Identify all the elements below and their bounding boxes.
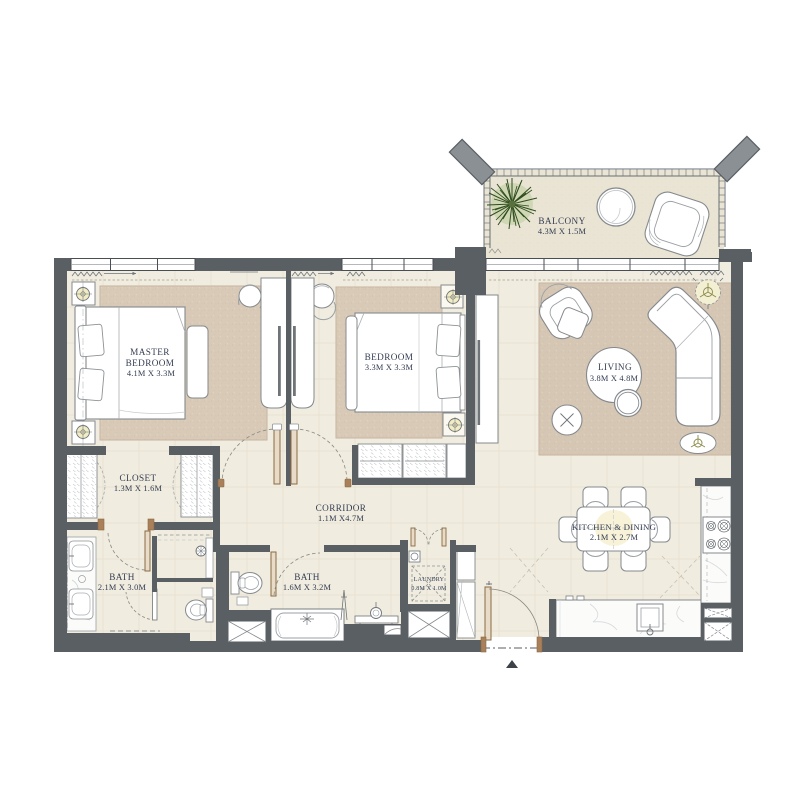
svg-text:BALCONY: BALCONY xyxy=(538,216,585,226)
svg-text:1.6M X 3.2M: 1.6M X 3.2M xyxy=(283,583,332,592)
svg-text:BEDROOM: BEDROOM xyxy=(365,352,414,362)
svg-text:0.8M X 1.0M: 0.8M X 1.0M xyxy=(411,586,447,592)
svg-text:1.1M X4.7M: 1.1M X4.7M xyxy=(318,514,364,523)
svg-text:4.3M X 1.5M: 4.3M X 1.5M xyxy=(538,227,587,236)
svg-text:LIVING: LIVING xyxy=(598,362,632,372)
svg-text:KITCHEN & DINING: KITCHEN & DINING xyxy=(572,522,657,532)
svg-text:1.3M X 1.6M: 1.3M X 1.6M xyxy=(114,484,163,493)
svg-text:CORRIDOR: CORRIDOR xyxy=(316,503,367,513)
svg-text:4.1M X 3.3M: 4.1M X 3.3M xyxy=(127,369,176,378)
svg-text:3.3M X 3.3M: 3.3M X 3.3M xyxy=(365,363,414,372)
svg-text:3.8M X 4.8M: 3.8M X 4.8M xyxy=(590,374,639,383)
svg-text:MASTER: MASTER xyxy=(130,347,170,357)
svg-text:BATH: BATH xyxy=(109,572,135,582)
svg-text:BEDROOM: BEDROOM xyxy=(126,358,175,368)
svg-text:2.1M X 2.7M: 2.1M X 2.7M xyxy=(590,533,639,542)
svg-text:2.1M X 3.0M: 2.1M X 3.0M xyxy=(98,583,147,592)
svg-text:LAUNDRY: LAUNDRY xyxy=(414,577,445,583)
svg-text:BATH: BATH xyxy=(294,572,320,582)
svg-text:CLOSET: CLOSET xyxy=(119,473,156,483)
